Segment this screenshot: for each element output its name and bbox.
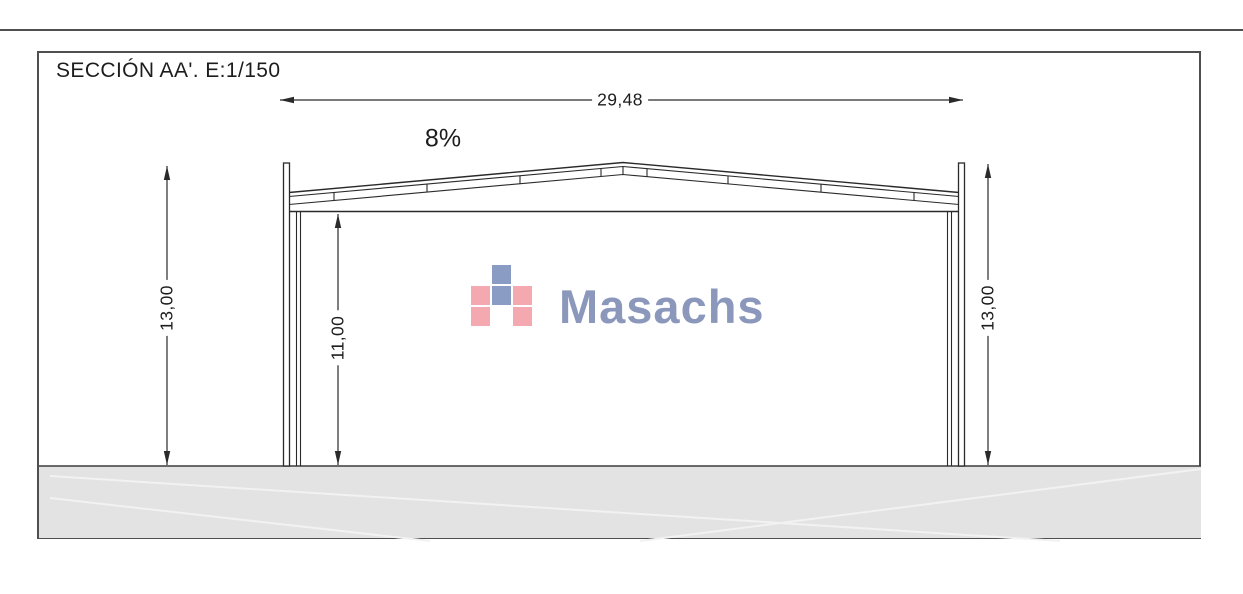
right-column <box>959 163 965 466</box>
logo-square-pink <box>513 286 532 305</box>
logo-square-pink <box>513 307 532 326</box>
ground <box>39 466 1201 541</box>
masachs-logo-mark-icon <box>471 265 532 326</box>
logo-square-blue <box>492 265 511 284</box>
masachs-logo <box>471 265 532 326</box>
drawing-title: SECCIÓN AA'. E:1/150 <box>56 60 280 81</box>
logo-square-empty <box>471 265 490 284</box>
section-drawing-sheet: SECCIÓN AA'. E:1/150 29,48 8% 13,00 11,0… <box>0 0 1243 594</box>
roof <box>289 163 959 205</box>
span-dimension-label: 29,48 <box>592 90 648 110</box>
left-inner-wall <box>297 212 301 467</box>
clear-height-label: 11,00 <box>328 311 348 366</box>
logo-square-pink <box>471 286 490 305</box>
logo-square-empty <box>513 265 532 284</box>
roof-slope-label: 8% <box>425 127 461 152</box>
height-right-label: 13,00 <box>978 280 998 336</box>
logo-square-empty <box>492 307 511 326</box>
left-column <box>284 163 290 466</box>
logo-square-pink <box>471 307 490 326</box>
logo-square-blue <box>492 286 511 305</box>
height-left-label: 13,00 <box>157 280 177 336</box>
right-inner-wall <box>948 212 952 467</box>
masachs-wordmark: Masachs <box>559 283 765 330</box>
